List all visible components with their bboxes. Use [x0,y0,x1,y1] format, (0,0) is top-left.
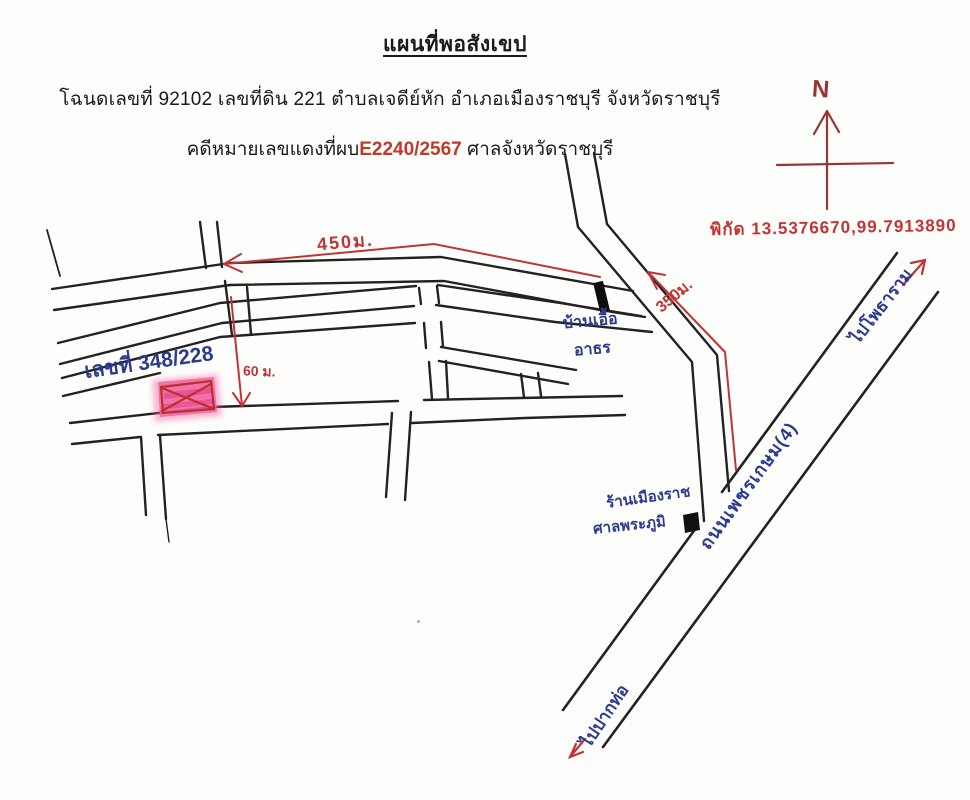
distance-label-60m: 60 ม. [243,362,276,379]
compass-north-label: N [811,75,830,104]
bridge-marker [598,282,605,311]
scan-speck [417,620,420,623]
housing-label-line2: อาธร [573,339,611,361]
north-access-road [565,153,729,521]
measurement-line-60m [231,297,250,406]
scanned-sketch-map-page: { "document": { "title": "แผนที่พอสังเขป… [0,0,970,800]
compass-north-arrow-icon [777,111,893,209]
shop-marker [683,512,700,533]
sketch-map-drawing [0,0,970,800]
